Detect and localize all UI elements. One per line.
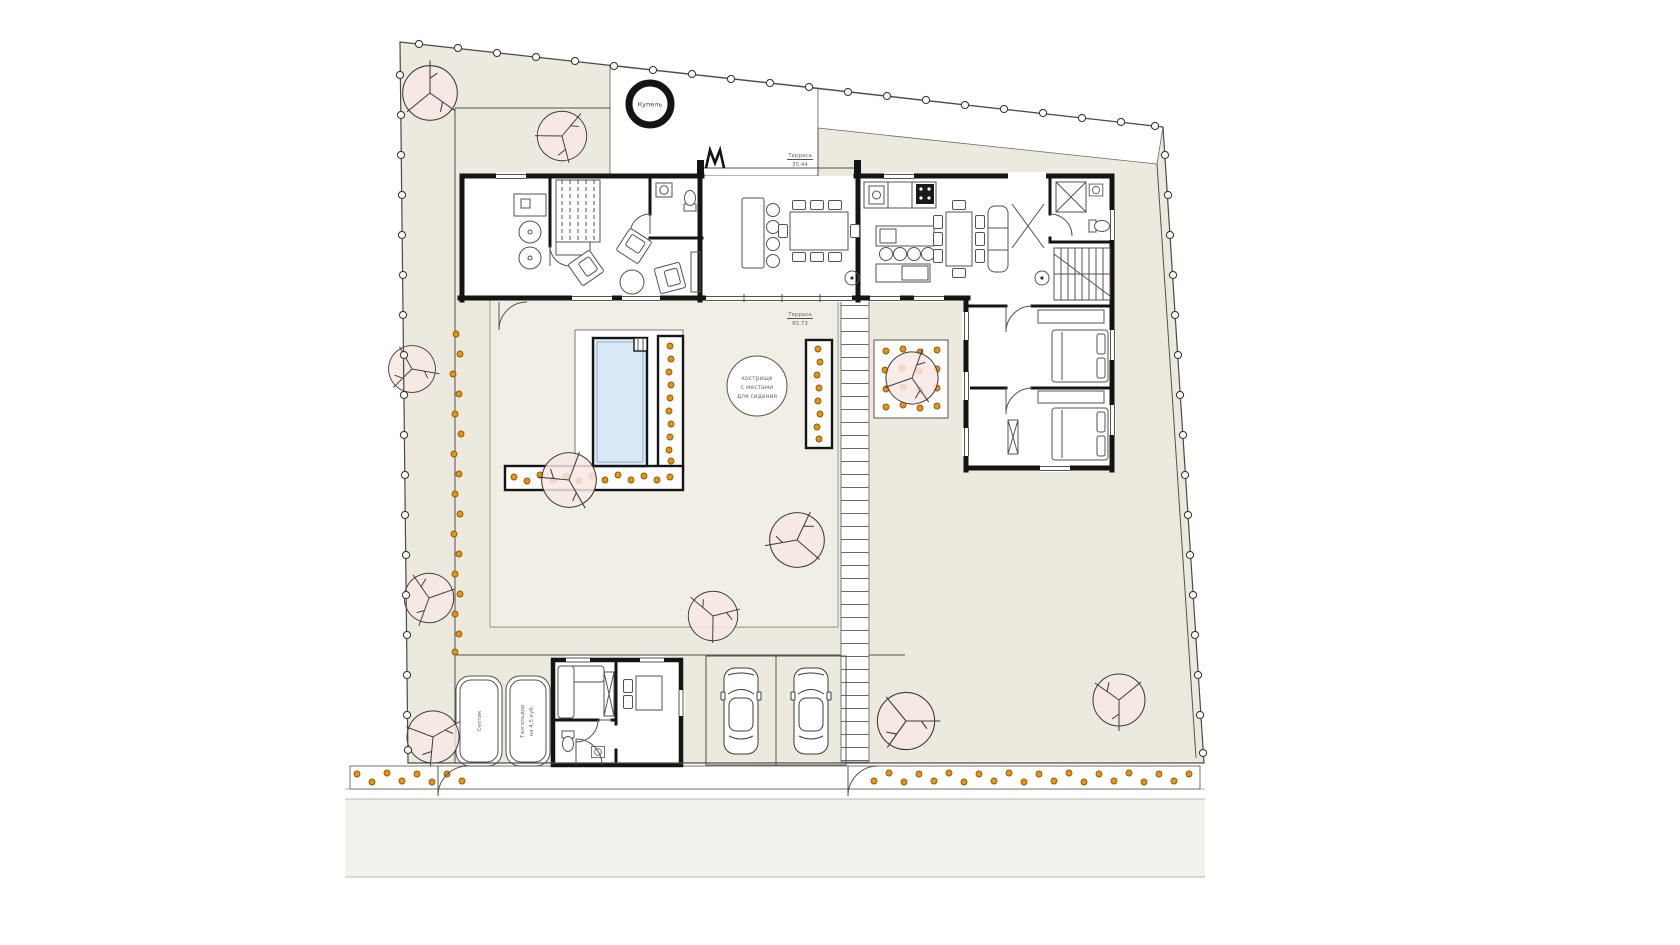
road-surface xyxy=(345,799,1205,877)
terrace-main-area: 85.73 xyxy=(792,321,808,327)
dining-table-2 xyxy=(946,212,972,266)
fence-post xyxy=(805,83,812,90)
dining-chair xyxy=(976,233,985,246)
pool xyxy=(593,338,647,466)
sink-icon xyxy=(656,183,672,197)
guest-chair xyxy=(624,696,633,709)
gas-holder-label-2: на 4,5 куб. xyxy=(529,705,535,736)
gas-holder: Газгольдер на 4,5 куб. xyxy=(506,676,550,766)
coffee-table xyxy=(620,270,644,294)
dining-chair xyxy=(934,233,943,246)
shrub-dot xyxy=(1021,779,1027,785)
fence-post xyxy=(399,311,406,318)
dining-chair xyxy=(793,253,806,262)
shrub-dot xyxy=(414,771,420,777)
guest-house xyxy=(553,656,685,765)
shrub-dot xyxy=(1066,770,1072,776)
shrub-dot xyxy=(667,343,673,349)
shrub-dot xyxy=(456,631,462,637)
fence-post xyxy=(400,351,407,358)
shrub-dot xyxy=(667,395,673,401)
shrub-dot xyxy=(628,477,634,483)
fence-post xyxy=(402,591,409,598)
stool xyxy=(767,204,780,217)
boardwalk-planks xyxy=(841,300,869,762)
shrub-dot xyxy=(1126,770,1132,776)
stove xyxy=(916,184,934,204)
fence-post xyxy=(400,431,407,438)
shrub-dot xyxy=(451,531,457,537)
fence-post xyxy=(1174,351,1181,358)
shrub-dot xyxy=(916,771,922,777)
shrub-dot xyxy=(641,473,647,479)
shrub-dot xyxy=(457,591,463,597)
fence-post xyxy=(1184,511,1191,518)
fence-post xyxy=(398,231,405,238)
fence-post xyxy=(401,471,408,478)
fence-post xyxy=(403,631,410,638)
fence-post xyxy=(883,92,890,99)
pillow xyxy=(1097,334,1105,354)
pillow xyxy=(1097,358,1105,378)
dining-chair xyxy=(829,253,842,262)
fence-post xyxy=(401,511,408,518)
road xyxy=(345,789,1205,877)
bar-stool xyxy=(908,248,921,261)
fence-post xyxy=(961,101,968,108)
fence-post xyxy=(1196,711,1203,718)
fence-post xyxy=(396,71,403,78)
shrub-dot xyxy=(1036,771,1042,777)
stool xyxy=(767,255,780,268)
shrub-dot xyxy=(458,431,464,437)
shrub-dot xyxy=(602,477,608,483)
shrub-dot xyxy=(511,474,517,480)
shrub-dot xyxy=(667,474,673,480)
car-2 xyxy=(791,668,831,754)
shrub-dot xyxy=(450,371,456,377)
dining-chair xyxy=(953,201,966,210)
shrub-dot xyxy=(883,348,889,354)
fence-post xyxy=(727,75,734,82)
fence-post xyxy=(1039,109,1046,116)
fence-post xyxy=(403,671,410,678)
shrub-dot xyxy=(1186,771,1192,777)
fence-post xyxy=(1166,231,1173,238)
terrace-post xyxy=(697,160,704,176)
shrub-dot xyxy=(1096,771,1102,777)
site-plan-canvas: кострище с местами для сидения Септик Га… xyxy=(0,0,1680,945)
pillow xyxy=(1097,412,1105,432)
fence-post xyxy=(398,191,405,198)
fence-post xyxy=(922,96,929,103)
shrub-dot xyxy=(354,771,360,777)
parking xyxy=(706,656,846,765)
fence-post xyxy=(1186,551,1193,558)
dining-chair xyxy=(851,225,860,238)
shrub-dot xyxy=(1051,778,1057,784)
shrub-dot xyxy=(452,571,458,577)
bar-stool xyxy=(922,248,935,261)
shrub-dot xyxy=(654,477,660,483)
dining-chair xyxy=(953,269,966,278)
buffet-counter xyxy=(742,198,764,268)
sink-icon xyxy=(1089,184,1103,196)
fence-post xyxy=(397,111,404,118)
dining-chair xyxy=(934,250,943,263)
shrub-dot xyxy=(1006,770,1012,776)
shrub-dot xyxy=(457,351,463,357)
fence-post xyxy=(844,88,851,95)
terrace-post xyxy=(854,160,861,176)
fence-post xyxy=(1176,391,1183,398)
dining-chair xyxy=(811,253,824,262)
shrub-dot xyxy=(452,411,458,417)
dining-chair xyxy=(976,250,985,263)
stool xyxy=(767,238,780,251)
dining-chair xyxy=(793,201,806,210)
stool xyxy=(767,221,780,234)
dryer-icon xyxy=(519,247,541,269)
shrub-dot xyxy=(452,649,458,655)
shrub-dot xyxy=(668,356,674,362)
septic-tank: Септик xyxy=(456,676,502,766)
sauna-glass-door xyxy=(604,672,614,716)
shrub-dot xyxy=(666,369,672,375)
entrance-opening xyxy=(1008,172,1046,180)
shrub-dot xyxy=(452,491,458,497)
fence-post xyxy=(1191,631,1198,638)
shrub-dot xyxy=(883,404,889,410)
dining-chair xyxy=(811,201,824,210)
shrub-dot xyxy=(456,471,462,477)
toilet-icon xyxy=(562,731,574,752)
fence-post xyxy=(688,70,695,77)
plan-drawing: кострище с местами для сидения Септик Га… xyxy=(0,0,1680,945)
shrub-dot xyxy=(456,391,462,397)
fence-post xyxy=(1161,151,1168,158)
shrub-dot xyxy=(961,779,967,785)
terrace-upper-name: Терраса xyxy=(787,153,812,159)
hot-tub: Купель xyxy=(629,83,671,125)
fence-post xyxy=(399,271,406,278)
shrub-dot xyxy=(817,411,823,417)
shrub-dot xyxy=(456,551,462,557)
shrub-dot xyxy=(668,382,674,388)
fence-post xyxy=(532,53,539,60)
fence-post xyxy=(1151,122,1158,129)
fire-pit: кострище с местами для сидения xyxy=(727,356,787,416)
street-hedge-strip xyxy=(350,766,1200,789)
shrub-dot xyxy=(871,778,877,784)
fence-post xyxy=(1169,271,1176,278)
fence-post xyxy=(571,57,578,64)
fire-pit-label-3: для сидения xyxy=(737,393,777,400)
shrub-dot xyxy=(667,434,673,440)
terrace-main-name: Терраса xyxy=(787,312,812,318)
shrub-dot xyxy=(1111,778,1117,784)
dining-chair xyxy=(934,216,943,229)
dining-chair xyxy=(976,216,985,229)
fence-post xyxy=(397,151,404,158)
shrub-dot xyxy=(457,511,463,517)
shrub-dot xyxy=(1171,778,1177,784)
bar-stool xyxy=(894,248,907,261)
shrub-dot xyxy=(815,346,821,352)
shrub-dot xyxy=(399,778,405,784)
fence-post xyxy=(1189,591,1196,598)
pool-ladder-icon xyxy=(634,338,647,351)
fire-pit-label-1: кострище xyxy=(741,375,772,382)
car-1 xyxy=(721,668,761,754)
shrub-dot xyxy=(666,408,672,414)
fence-post xyxy=(649,66,656,73)
shrub-dot xyxy=(1141,779,1147,785)
fence-post xyxy=(1164,191,1171,198)
fence-post xyxy=(766,79,773,86)
shrub-dot xyxy=(369,779,375,785)
shrub-dot xyxy=(668,421,674,427)
pillow xyxy=(1097,436,1105,456)
fence-post xyxy=(1000,105,1007,112)
shrub-dot xyxy=(453,331,459,337)
shrub-dot xyxy=(934,403,940,409)
toilet-icon xyxy=(1089,220,1110,232)
shrub-dot xyxy=(814,424,820,430)
fence-post xyxy=(1194,671,1201,678)
fence-post xyxy=(454,44,461,51)
shrub-dot xyxy=(816,385,822,391)
shrub-dot xyxy=(429,779,435,785)
terrace-upper-area: 35.44 xyxy=(792,162,808,168)
shrub-dot xyxy=(934,347,940,353)
fence-post xyxy=(400,391,407,398)
sink-icon xyxy=(592,746,605,757)
shrub-dot xyxy=(976,771,982,777)
shrub-dot xyxy=(814,372,820,378)
fence-post xyxy=(493,49,500,56)
toilet-icon xyxy=(684,191,696,212)
fence-post xyxy=(1171,311,1178,318)
shrub-dot xyxy=(668,458,674,464)
shrub-dot xyxy=(917,405,923,411)
shrub-dot xyxy=(815,398,821,404)
shrub-dot xyxy=(886,770,892,776)
septic-label: Септик xyxy=(477,710,483,732)
sofa-l-vertical xyxy=(558,666,574,718)
fence-post xyxy=(1179,431,1186,438)
shrub-dot xyxy=(900,346,906,352)
fence-post xyxy=(1078,114,1085,121)
shrub-dot xyxy=(991,778,997,784)
guest-chair xyxy=(624,680,633,693)
shrub-dot xyxy=(451,451,457,457)
shrub-dot xyxy=(524,478,530,484)
fence-post xyxy=(403,711,410,718)
shrub-dot xyxy=(452,611,458,617)
dining-table-1 xyxy=(790,212,848,250)
planting-strip-center xyxy=(806,340,832,448)
kitchen-sideboard xyxy=(876,264,930,282)
sofa-bench xyxy=(988,206,1008,272)
guest-table xyxy=(636,676,662,710)
shrub-dot xyxy=(666,447,672,453)
washer-icon xyxy=(519,221,541,243)
bar-stool xyxy=(880,248,893,261)
shrub-dot xyxy=(459,778,465,784)
shrub-dot xyxy=(816,436,822,442)
fence-post xyxy=(1117,118,1124,125)
fence-post xyxy=(1181,471,1188,478)
gas-holder-label-1: Газгольдер xyxy=(520,704,526,738)
shrub-dot xyxy=(1081,779,1087,785)
shrub-dot xyxy=(901,779,907,785)
tv-console xyxy=(1008,420,1018,454)
shrub-dot xyxy=(615,472,621,478)
shrub-dot xyxy=(1156,771,1162,777)
dining-chair xyxy=(829,201,842,210)
fence-post xyxy=(610,62,617,69)
hot-tub-label: Купель xyxy=(638,101,663,109)
shrub-dot xyxy=(946,770,952,776)
fence-post xyxy=(415,40,422,47)
dining-chair xyxy=(779,225,788,238)
shrub-dot xyxy=(931,778,937,784)
fire-pit-label-2: с местами xyxy=(741,384,773,391)
shrub-dot xyxy=(384,770,390,776)
fence-post xyxy=(1199,749,1206,756)
fence-post xyxy=(404,746,411,753)
fence-post xyxy=(402,551,409,558)
shrub-dot xyxy=(817,359,823,365)
